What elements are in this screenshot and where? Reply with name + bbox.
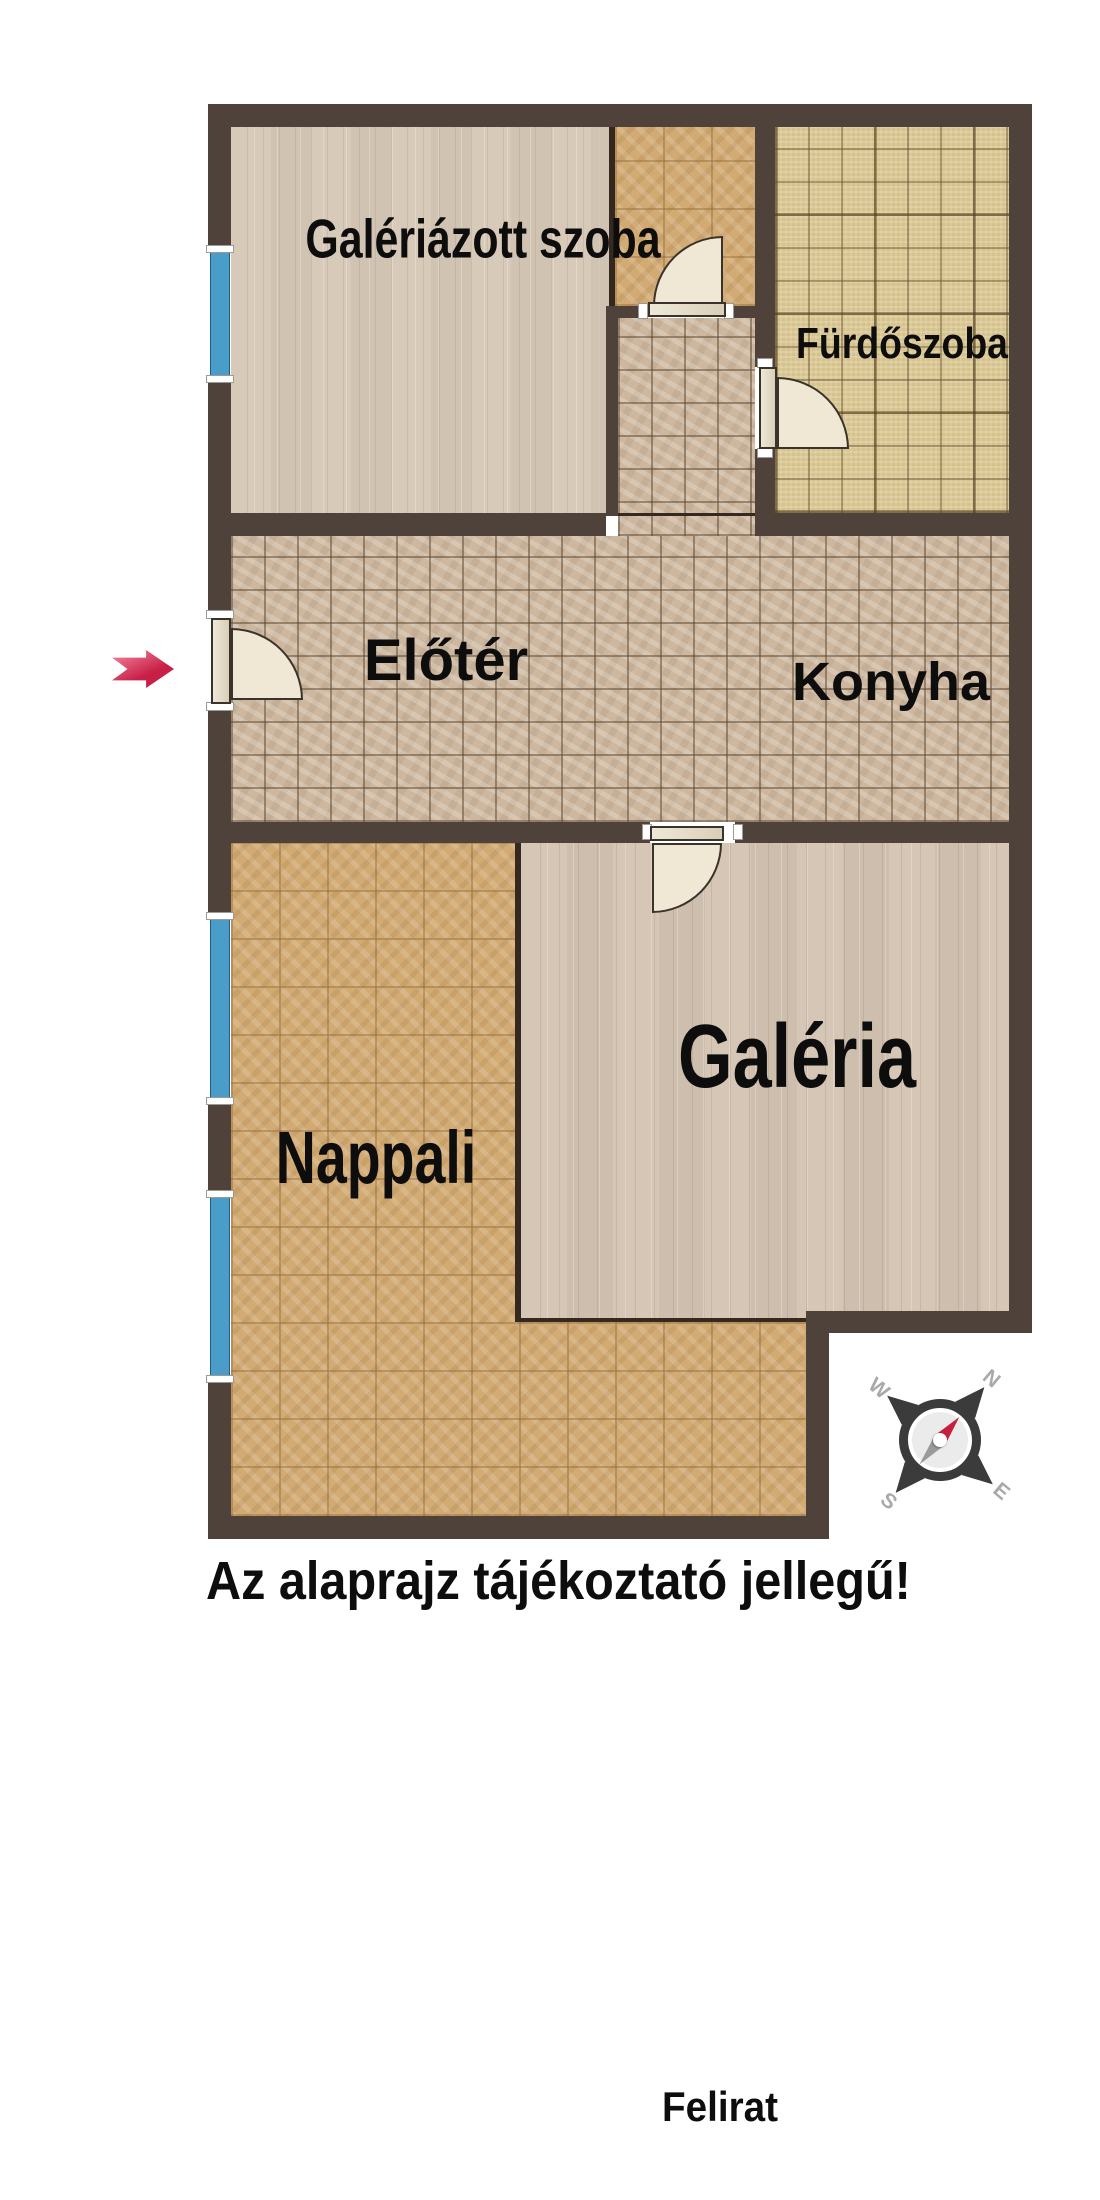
wall-left-seg4 [208,1100,231,1195]
window-cap [206,1190,234,1198]
entrance-door-leaf [211,618,231,704]
window-cap [206,245,234,253]
room-label-galeria: Galéria [678,1012,916,1102]
wall-mid-a-right [755,513,1009,536]
floor-small-room [618,318,755,536]
window-cap [206,912,234,920]
room-label-eloter: Előtér [364,632,528,690]
partition-galeria-bottom [521,1318,806,1322]
room-label-konyha: Konyha [792,655,990,709]
compass-letter-n: N [979,1366,1004,1392]
wall-step-horizontal [806,1311,1032,1333]
wall-lower-right [806,1311,829,1539]
wall-bath-left-upper [755,127,775,367]
partition-nappali-galeria [515,843,521,1322]
wall-smallroom-left [606,306,618,516]
door-jamb [733,824,743,840]
door-jamb [757,448,773,458]
room-label-furdoszoba: Fürdőszoba [796,322,1008,366]
floor-plan-page: Galériázott szoba Fürdőszoba Előtér Kony… [0,0,1100,2200]
window-cap [206,1375,234,1383]
wall-left-seg5 [208,1378,231,1539]
window-cap [206,1097,234,1105]
wall-top [208,104,1032,127]
room-label-nappali: Nappali [276,1121,476,1195]
door-jamb [638,303,648,319]
wall-mid-b-left [208,822,650,843]
wall-bath-left-lower [755,449,775,513]
floor-galeriazott-szoba [231,127,609,513]
wall-right [1009,104,1032,1333]
wall-bottom [208,1516,829,1539]
disclaimer-text: Az alaprajz tájékoztató jellegű! [206,1554,911,1608]
room-label-galeriazott: Galériázott szoba [305,212,660,267]
wall-mid-a-left [208,513,606,536]
window-galeriazott [210,250,230,378]
galeria-door-leaf [650,826,724,841]
wall-left-seg2 [208,378,231,618]
wall-left-seg1 [208,104,231,250]
window-cap [206,375,234,383]
wall-left-seg3 [208,704,231,917]
footer-caption: Felirat [662,2086,778,2128]
bathroom-door-leaf [759,367,777,449]
compass-letter-e: E [989,1479,1013,1504]
window-nappali-1 [210,917,230,1100]
window-nappali-2 [210,1195,230,1378]
smallroom-door-leaf [648,302,726,317]
wall-mid-b-right [735,822,1009,843]
compass-letter-s: S [876,1489,900,1514]
compass-rose: N E S W [820,1320,1060,1560]
entrance-arrow-icon [112,650,174,688]
partition-smallroom-bottom [618,513,755,516]
